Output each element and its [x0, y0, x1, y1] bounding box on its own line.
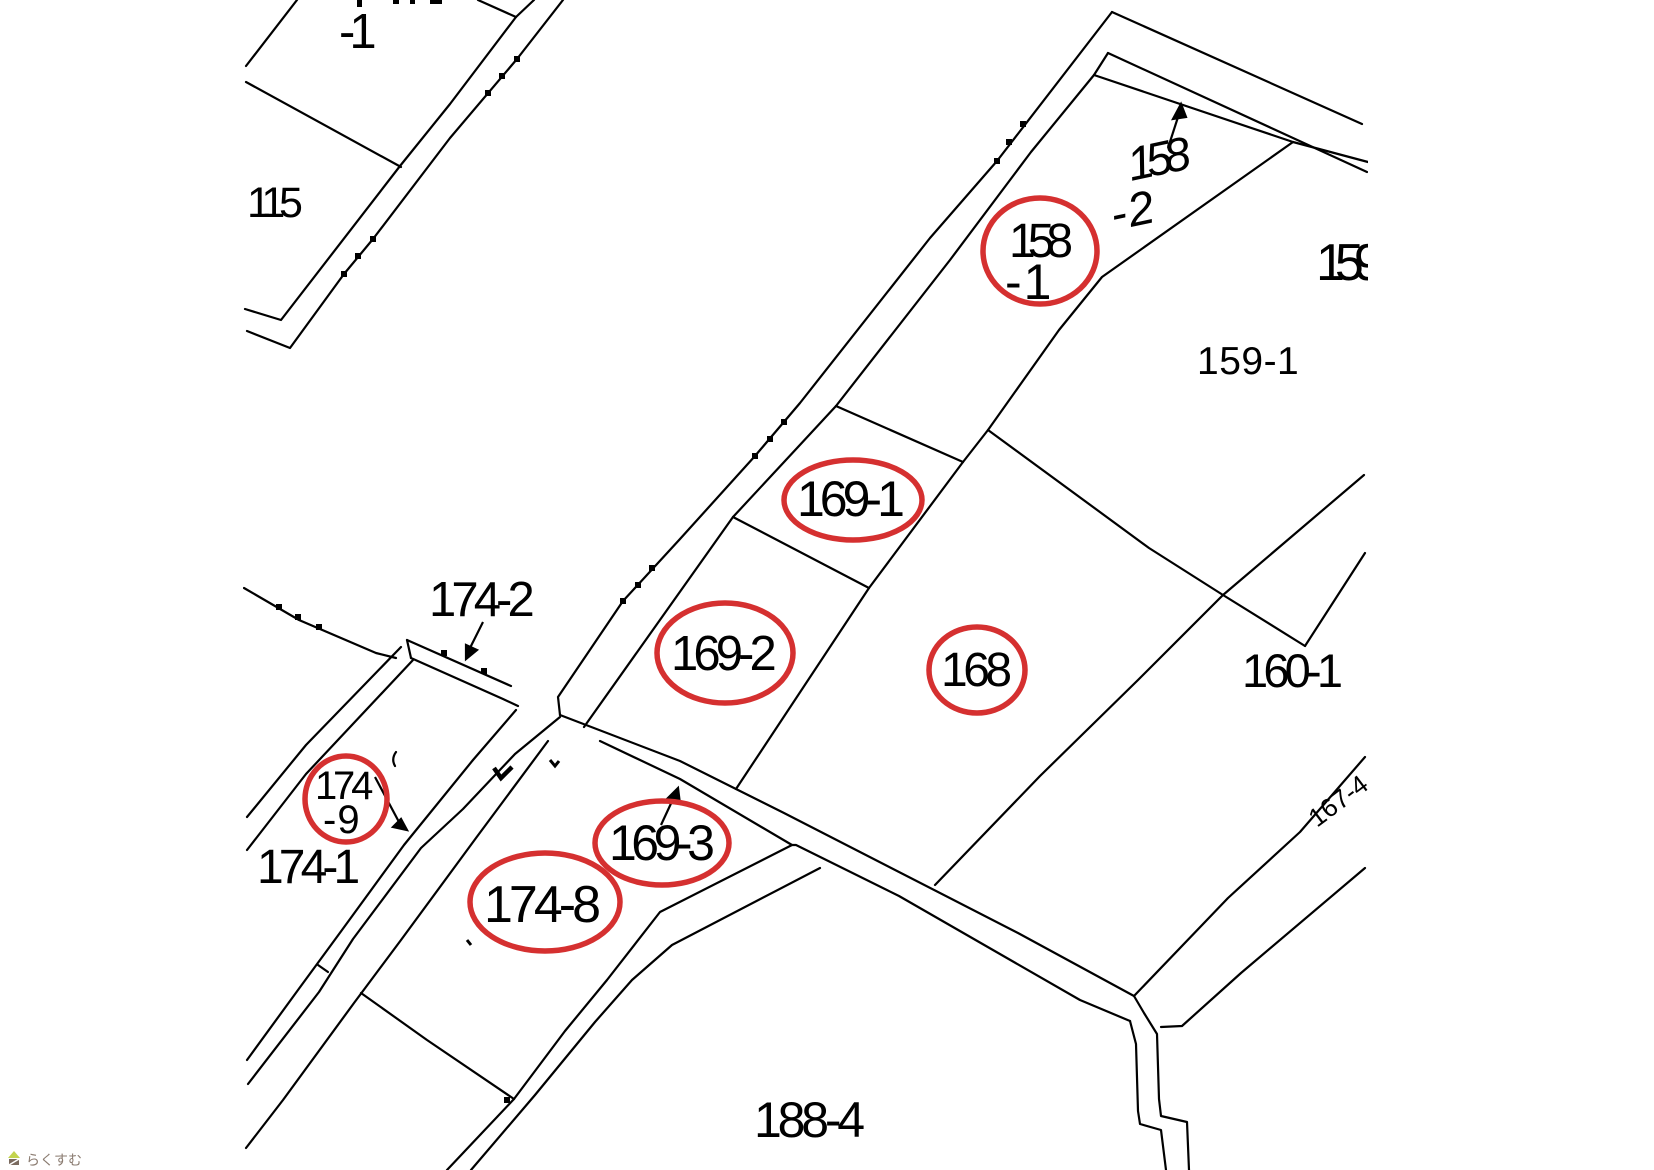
- svg-text:174-8: 174-8: [484, 876, 599, 934]
- svg-text:160-1: 160-1: [1242, 644, 1341, 697]
- svg-text:174-1: 174-1: [257, 841, 358, 894]
- svg-text:169-3: 169-3: [609, 815, 713, 871]
- svg-text:-9: -9: [323, 798, 361, 842]
- svg-text:169-1: 169-1: [797, 471, 903, 527]
- svg-text:174-2: 174-2: [429, 573, 532, 627]
- svg-text:115: 115: [247, 179, 302, 227]
- svg-text:188-4: 188-4: [754, 1092, 864, 1148]
- svg-text:159-1: 159-1: [1197, 340, 1299, 383]
- svg-text:-1: -1: [339, 5, 374, 59]
- svg-text:168: 168: [941, 644, 1010, 697]
- svg-text:169-2: 169-2: [671, 627, 774, 681]
- svg-text:らくすむ: らくすむ: [26, 1152, 82, 1168]
- svg-text:-1: -1: [1005, 254, 1053, 310]
